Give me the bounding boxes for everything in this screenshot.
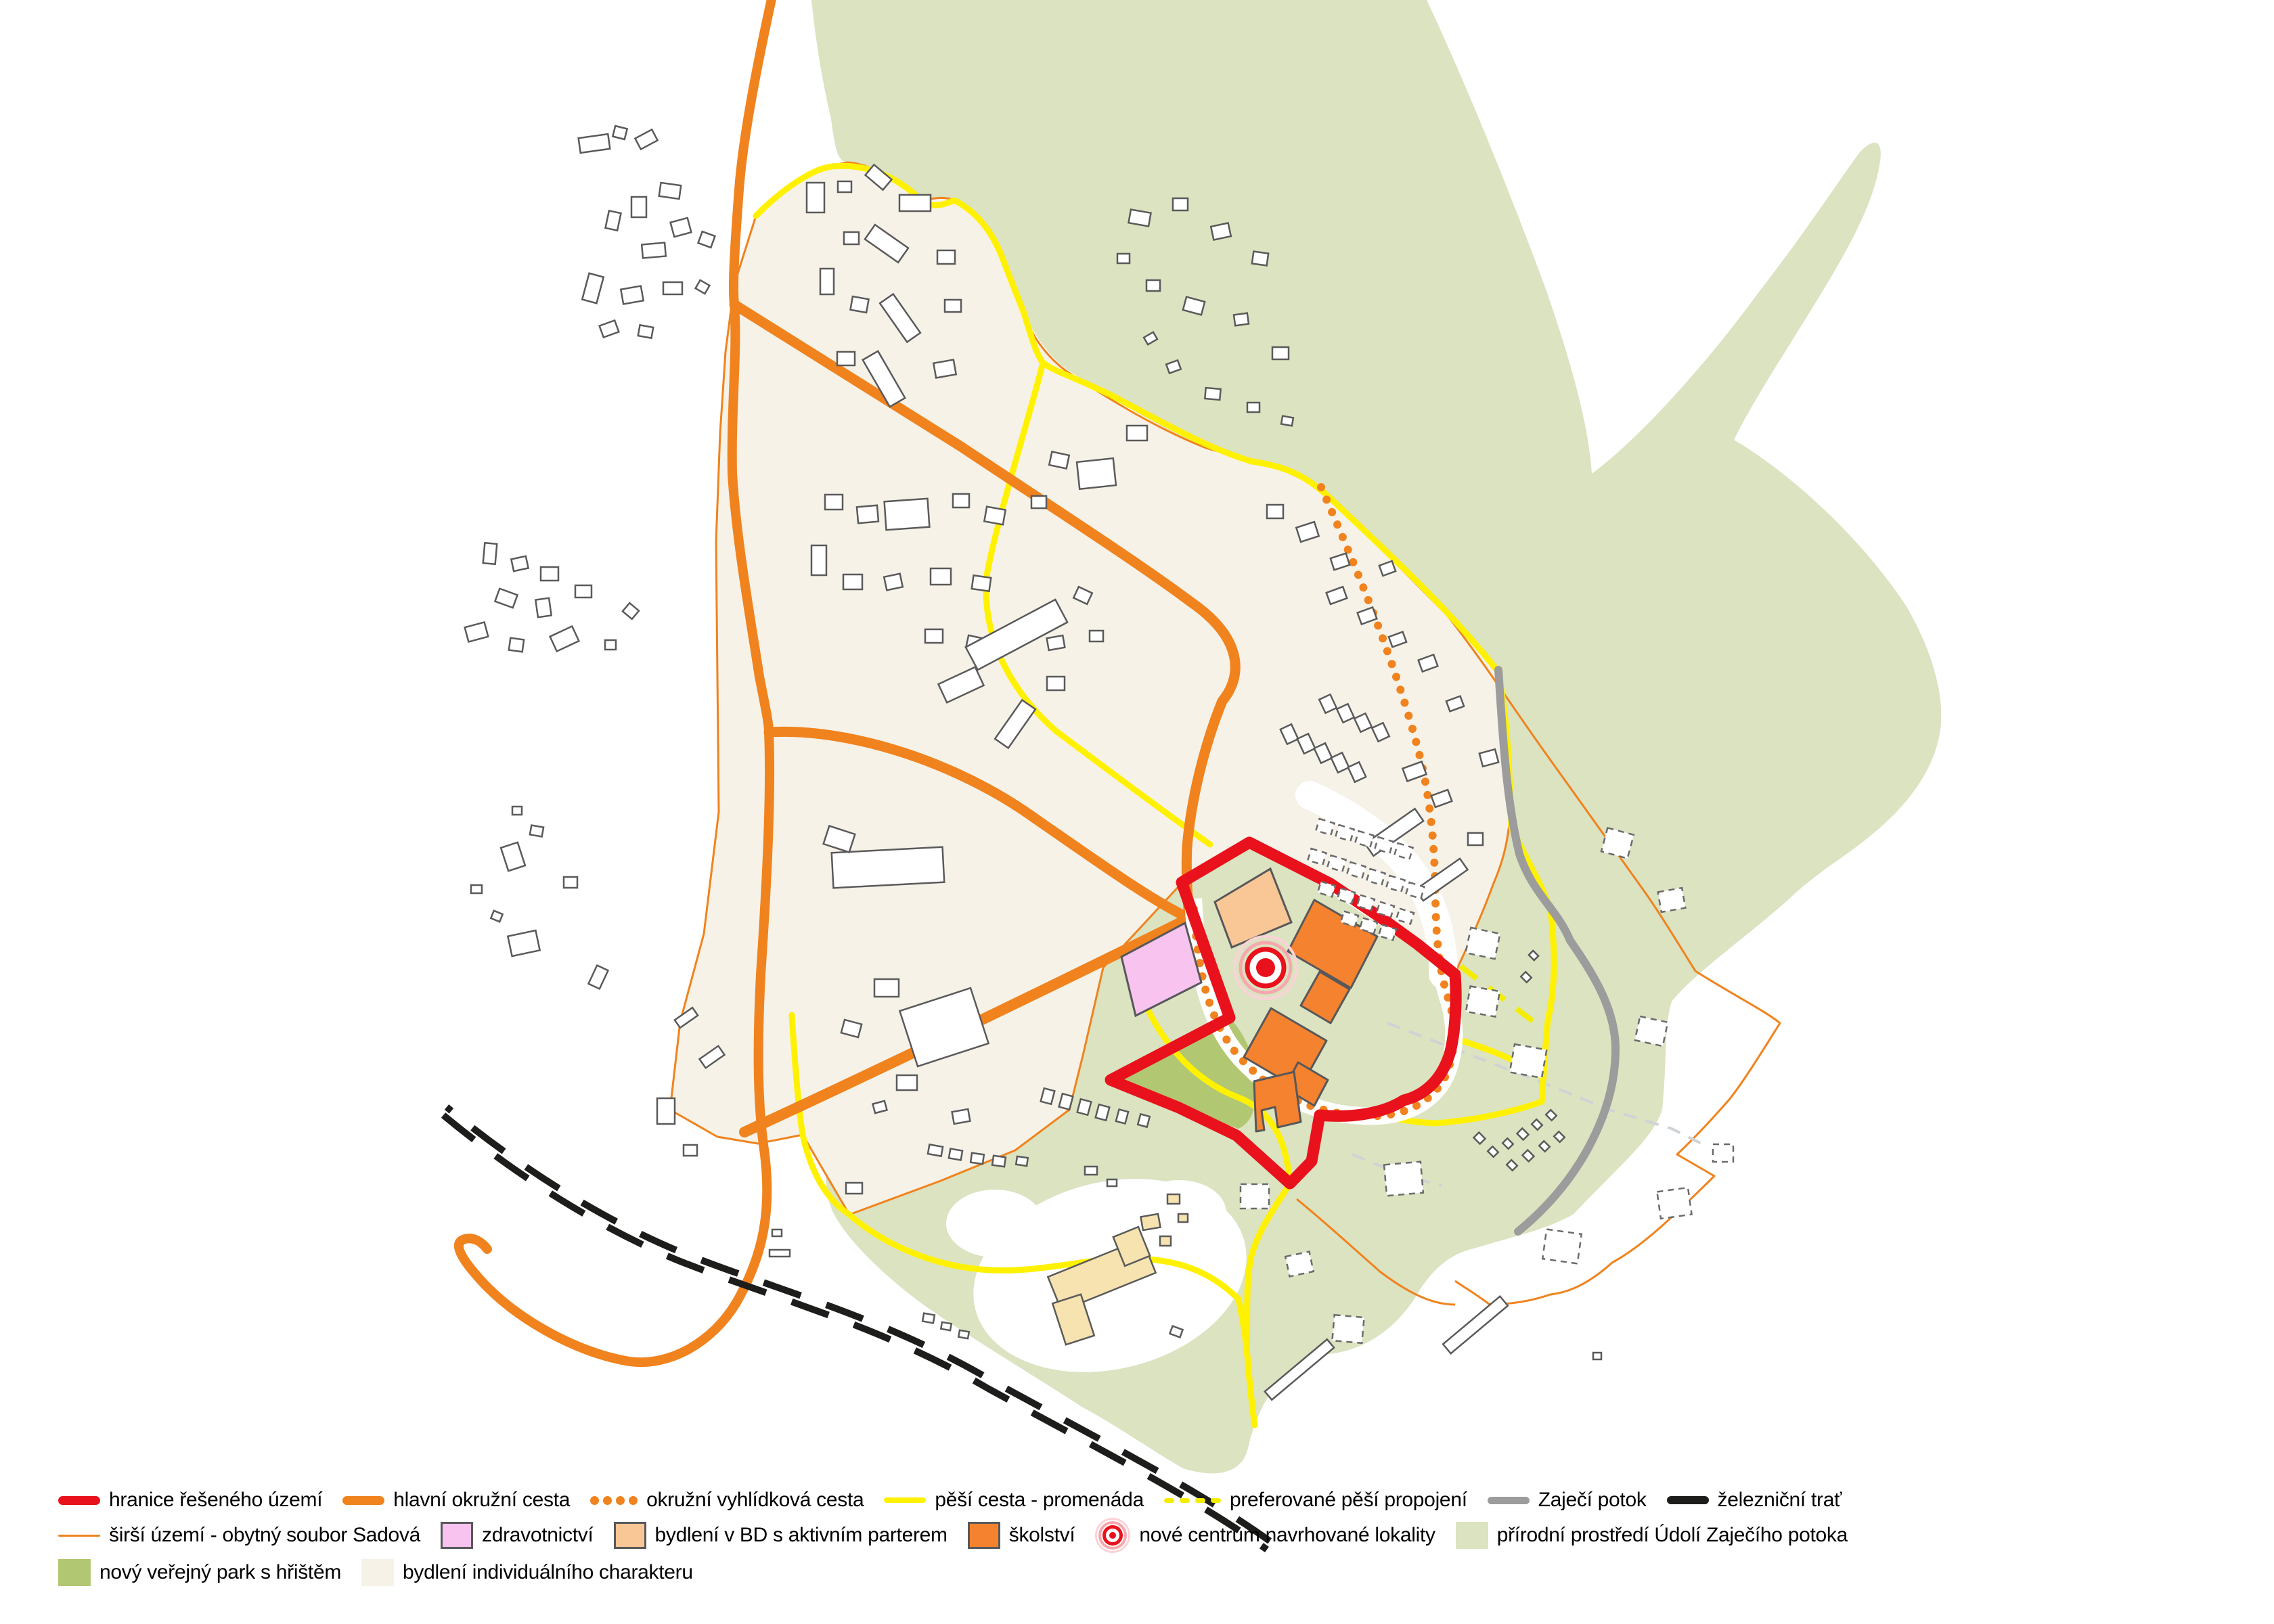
legend-item: bydlení individuálního charakteru (361, 1559, 693, 1586)
legend: hranice řešeného územíhlavní okružní ces… (58, 1489, 1868, 1586)
legend-line-swatch (884, 1497, 926, 1503)
legend-box-swatch (968, 1522, 1000, 1549)
legend-target-icon (1095, 1518, 1130, 1553)
legend-item: pěší cesta - promenáda (884, 1489, 1144, 1512)
legend-dashes-swatch (1164, 1498, 1221, 1503)
legend-item: bydlení v BD s aktivním parterem (614, 1522, 947, 1549)
legend-item: hranice řešeného území (58, 1489, 322, 1512)
legend-item: zdravotnictví (441, 1522, 594, 1549)
legend-line-swatch (342, 1496, 384, 1505)
legend-item: železniční trať (1667, 1489, 1842, 1512)
legend-dots-swatch (590, 1496, 638, 1505)
legend-item: širší území - obytný soubor Sadová (58, 1524, 420, 1547)
legend-box-swatch (441, 1522, 473, 1549)
legend-row: širší území - obytný soubor Sadovázdravo… (58, 1518, 1868, 1553)
legend-item-label: zdravotnictví (482, 1524, 594, 1547)
legend-item: preferované pěší propojení (1164, 1489, 1467, 1512)
legend-item-label: Zaječí potok (1538, 1489, 1647, 1512)
site-plan-canvas: hranice řešeného územíhlavní okružní ces… (0, 0, 2274, 1624)
legend-item: hlavní okružní cesta (342, 1489, 570, 1512)
legend-line-swatch (1667, 1496, 1709, 1504)
legend-box-swatch (58, 1559, 91, 1586)
legend-item: nové centrum navrhované lokality (1095, 1518, 1435, 1553)
site-plan-map (0, 0, 2274, 1624)
legend-item-label: širší území - obytný soubor Sadová (109, 1524, 420, 1547)
legend-item-label: bydlení v BD s aktivním parterem (655, 1524, 947, 1547)
legend-item: nový veřejný park s hřištěm (58, 1559, 341, 1586)
legend-item-label: hlavní okružní cesta (393, 1489, 570, 1512)
legend-item-label: přírodní prostředí Údolí Zaječího potoka (1497, 1524, 1848, 1547)
legend-item-label: školství (1009, 1524, 1075, 1547)
legend-box-swatch (1456, 1522, 1488, 1549)
legend-item-label: železniční trať (1718, 1489, 1842, 1512)
legend-item-label: bydlení individuálního charakteru (403, 1561, 693, 1584)
legend-row: hranice řešeného územíhlavní okružní ces… (58, 1489, 1868, 1512)
legend-item-label: okružní vyhlídková cesta (646, 1489, 864, 1512)
legend-line-swatch (1488, 1497, 1530, 1504)
legend-item-label: preferované pěší propojení (1230, 1489, 1467, 1512)
legend-item-label: nový veřejný park s hřištěm (99, 1561, 341, 1584)
legend-box-swatch (614, 1522, 646, 1549)
legend-item: přírodní prostředí Údolí Zaječího potoka (1456, 1522, 1848, 1549)
legend-item: školství (968, 1522, 1075, 1549)
legend-item: Zaječí potok (1488, 1489, 1647, 1512)
legend-item: okružní vyhlídková cesta (590, 1489, 864, 1512)
legend-item-label: hranice řešeného území (109, 1489, 322, 1512)
legend-row: nový veřejný park s hřištěmbydlení indiv… (58, 1559, 1868, 1586)
legend-line-swatch (58, 1535, 100, 1537)
legend-line-swatch (58, 1496, 100, 1505)
legend-item-label: pěší cesta - promenáda (935, 1489, 1144, 1512)
legend-box-swatch (361, 1559, 394, 1586)
legend-item-label: nové centrum navrhované lokality (1139, 1524, 1435, 1547)
